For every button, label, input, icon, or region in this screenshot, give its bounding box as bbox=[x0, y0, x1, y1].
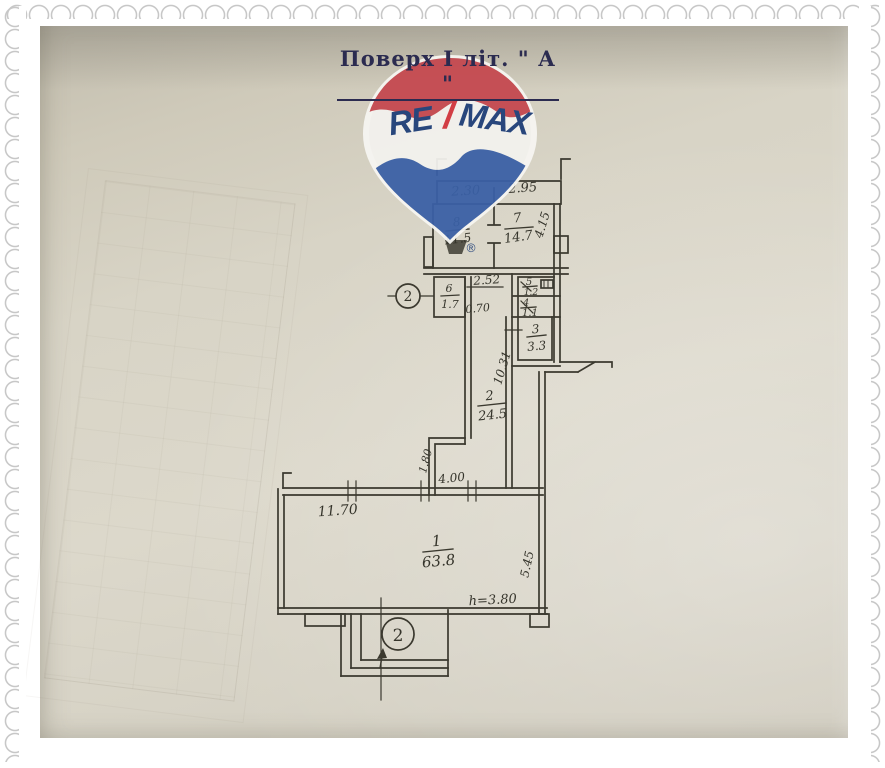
deckle-edge-bottom bbox=[6, 742, 879, 766]
screenshot-root: 2.30 2.95 4.15 8 11.5 7 14.7 2.52 6 1.7 … bbox=[0, 0, 885, 768]
deckle-edge-right bbox=[859, 6, 883, 762]
deckle-edge-left bbox=[2, 6, 26, 762]
deckle-edge-top bbox=[6, 2, 879, 26]
page-title: Поверх І літ. " А " bbox=[337, 46, 559, 101]
